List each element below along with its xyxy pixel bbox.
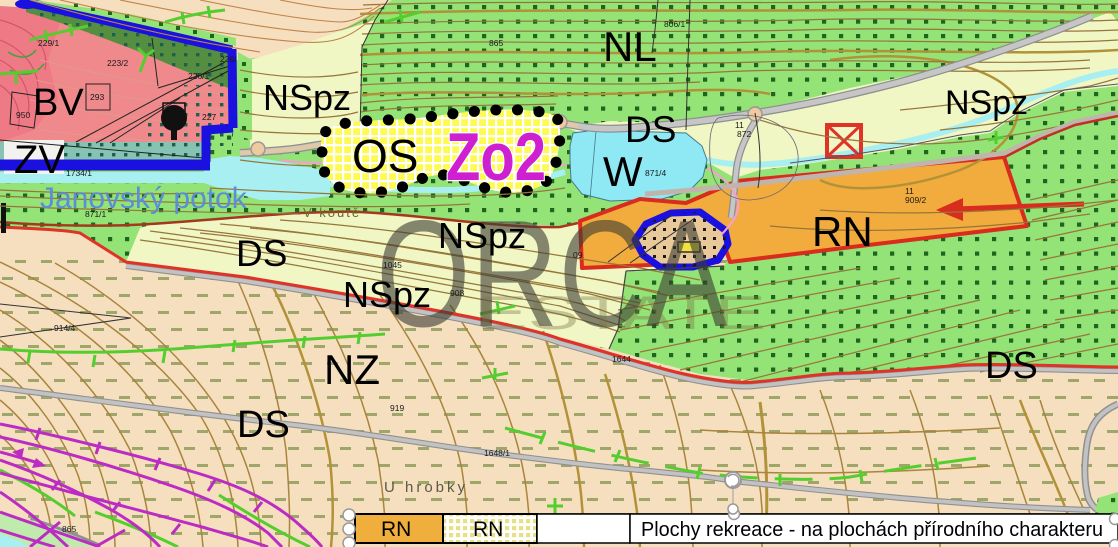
svg-text:293: 293 (90, 92, 104, 102)
svg-text:DS: DS (237, 404, 290, 446)
svg-text:11: 11 (905, 186, 914, 196)
svg-text:RN: RN (812, 208, 873, 255)
svg-text:950: 950 (16, 110, 30, 120)
svg-text:865: 865 (489, 38, 503, 48)
svg-text:1648/1: 1648/1 (484, 448, 510, 458)
svg-text:RN: RN (381, 518, 411, 541)
svg-text:NSpz: NSpz (263, 77, 351, 118)
svg-text:DS: DS (985, 345, 1038, 387)
svg-text:909/2: 909/2 (905, 195, 927, 205)
svg-text:BV: BV (33, 82, 84, 124)
svg-text:ESTATE: ESTATE (476, 286, 766, 339)
svg-text:229/1: 229/1 (38, 38, 60, 48)
svg-text:871/1: 871/1 (85, 209, 107, 219)
svg-text:NL: NL (603, 23, 657, 70)
svg-text:Zo2: Zo2 (446, 119, 546, 195)
svg-text:865: 865 (62, 524, 76, 534)
svg-text:NSpz: NSpz (438, 215, 526, 256)
svg-text:Plochy rekreace - na plochách: Plochy rekreace - na plochách přírodního… (641, 518, 1103, 541)
svg-text:908: 908 (450, 288, 464, 298)
svg-text:DS: DS (625, 109, 676, 150)
svg-text:1734/1: 1734/1 (66, 168, 92, 178)
svg-text:NZ: NZ (324, 346, 380, 393)
svg-text:W: W (603, 148, 643, 195)
svg-text:1045: 1045 (383, 260, 402, 270)
svg-text:871/4: 871/4 (645, 168, 667, 178)
svg-text:872: 872 (737, 129, 751, 139)
svg-text:1644: 1644 (612, 354, 631, 364)
svg-text:919: 919 (390, 403, 404, 413)
svg-text:223/2: 223/2 (107, 58, 129, 68)
svg-text:ZV: ZV (14, 138, 65, 182)
svg-text:227: 227 (202, 112, 216, 122)
svg-text:806/1: 806/1 (664, 19, 686, 29)
svg-text:Janovský potok: Janovský potok (40, 182, 248, 215)
svg-text:DS: DS (236, 233, 287, 274)
svg-text:226/1: 226/1 (188, 71, 210, 81)
svg-text:226/: 226/ (220, 54, 237, 64)
svg-text:V koutě: V koutě (303, 205, 361, 220)
svg-text:U hrobky: U hrobky (384, 479, 468, 496)
svg-text:RN: RN (473, 518, 503, 541)
svg-text:09: 09 (573, 250, 583, 260)
svg-text:11: 11 (735, 120, 744, 130)
svg-text:NSpz: NSpz (343, 274, 431, 315)
svg-text:914/4: 914/4 (54, 323, 76, 333)
svg-text:OS: OS (352, 130, 418, 182)
svg-text:NSpz: NSpz (945, 84, 1028, 122)
